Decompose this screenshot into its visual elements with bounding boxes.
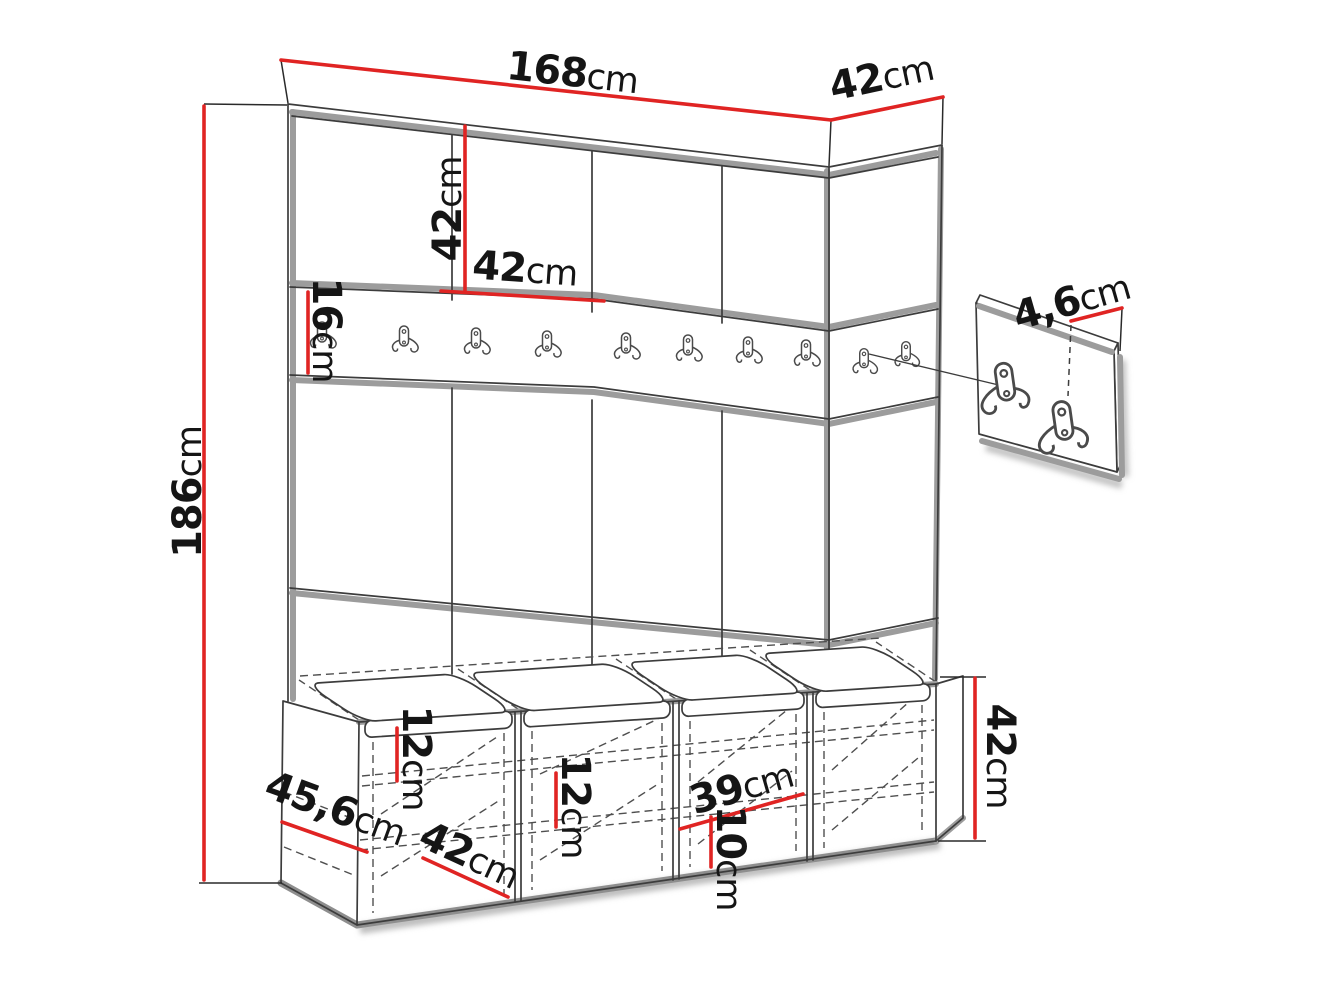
svg-text:12cm: 12cm [393,705,439,810]
furniture-dimension-diagram: 168cm 42cm 186cm 42cm 42cm 16cm 4,6cm 12… [0,0,1317,988]
dim-total-width: 168cm [504,43,640,103]
dim-panel-height: 42cm [425,156,471,261]
dim-panel-width: 42cm [471,242,579,295]
storage-bench [281,638,963,925]
coat-hook-icon [853,349,877,374]
coat-hook-icon [535,331,561,357]
coat-hook-icon [676,335,702,361]
svg-text:42cm: 42cm [425,156,471,261]
dim-shelf-gap-mid: 12cm [552,753,598,858]
dim-rail-height: 16cm [303,277,349,382]
svg-text:42cm: 42cm [977,703,1023,808]
svg-text:186cm: 186cm [165,426,211,558]
svg-text:10cm: 10cm [707,805,753,910]
wall-shadow-lines [292,112,941,699]
svg-text:168cm: 168cm [504,43,640,103]
dimension-labels: 168cm 42cm 186cm 42cm 42cm 16cm 4,6cm 12… [165,43,1135,911]
dim-shelf-gap-upper: 12cm [393,705,439,810]
dim-bench-height: 42cm [977,703,1023,808]
diagram-canvas: 168cm 42cm 186cm 42cm 42cm 16cm 4,6cm 12… [0,0,1317,988]
dim-total-height: 186cm [165,426,211,558]
coat-hook-icon [736,337,762,363]
dim-shelf-gap-low: 10cm [707,805,753,910]
svg-text:42cm: 42cm [471,242,579,295]
coat-hook-icon [392,326,418,352]
wall-outlines [288,104,942,701]
panel-wall [288,104,942,701]
svg-text:12cm: 12cm [552,753,598,858]
svg-text:16cm: 16cm [303,277,349,382]
coat-hook-icon [794,340,820,366]
coat-hook-icon [464,328,490,354]
coat-hook-icon [614,333,640,359]
